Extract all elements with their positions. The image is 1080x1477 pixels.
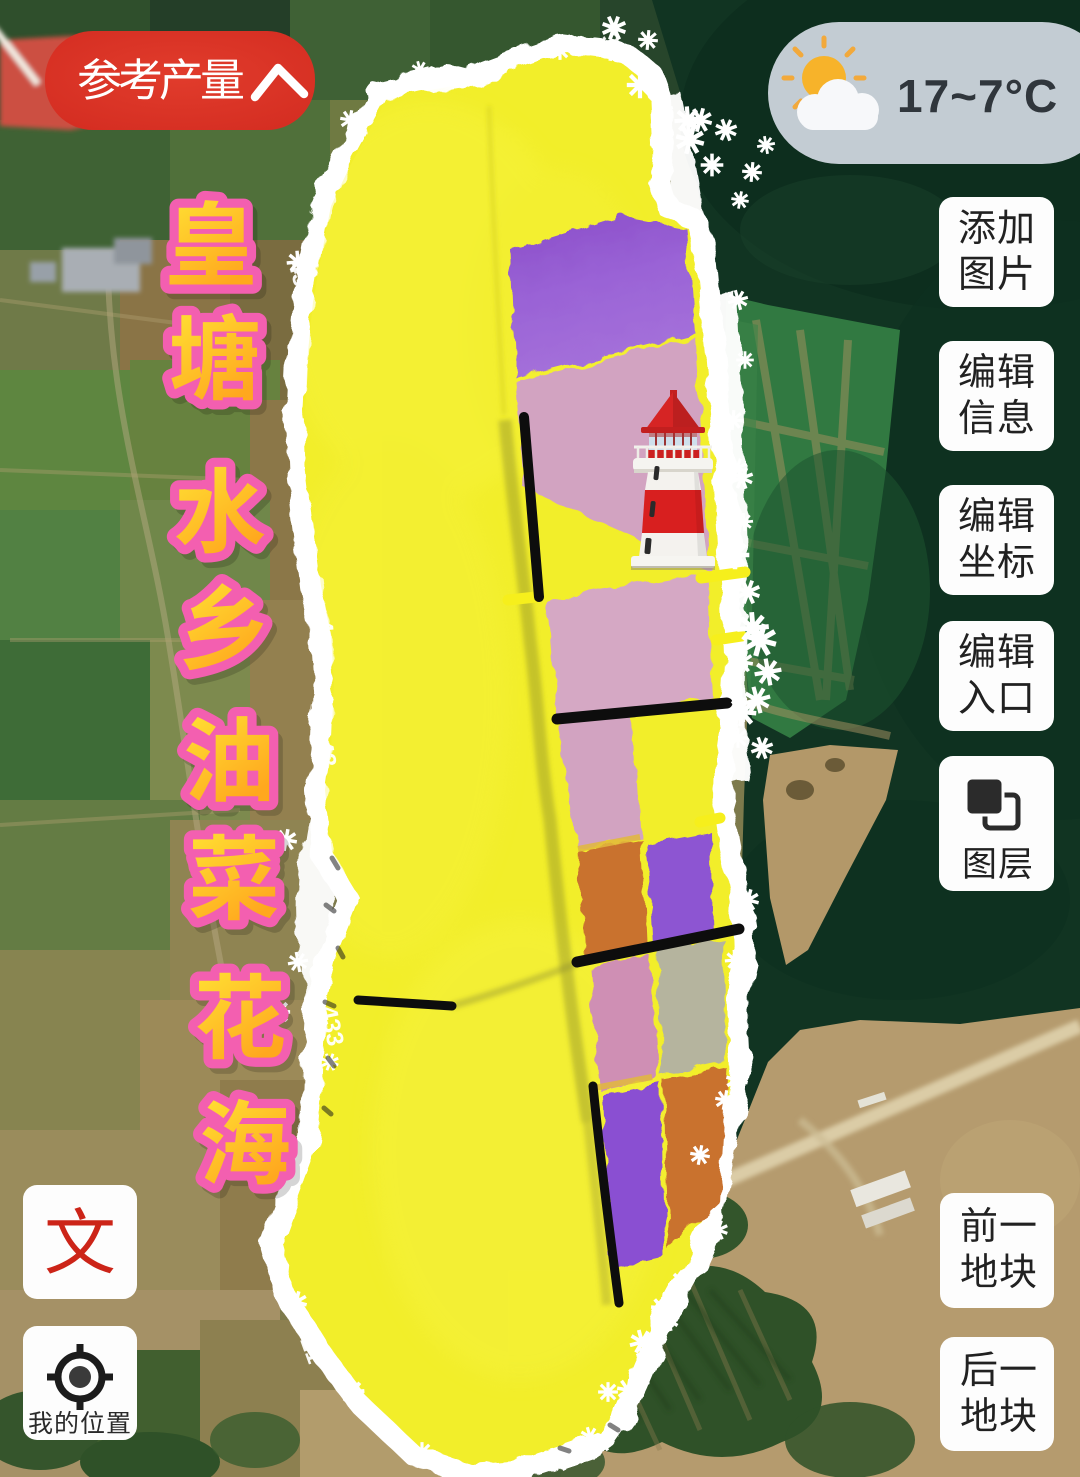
svg-text:43: 43: [310, 738, 341, 769]
svg-text:17~7°C: 17~7°C: [897, 70, 1058, 122]
